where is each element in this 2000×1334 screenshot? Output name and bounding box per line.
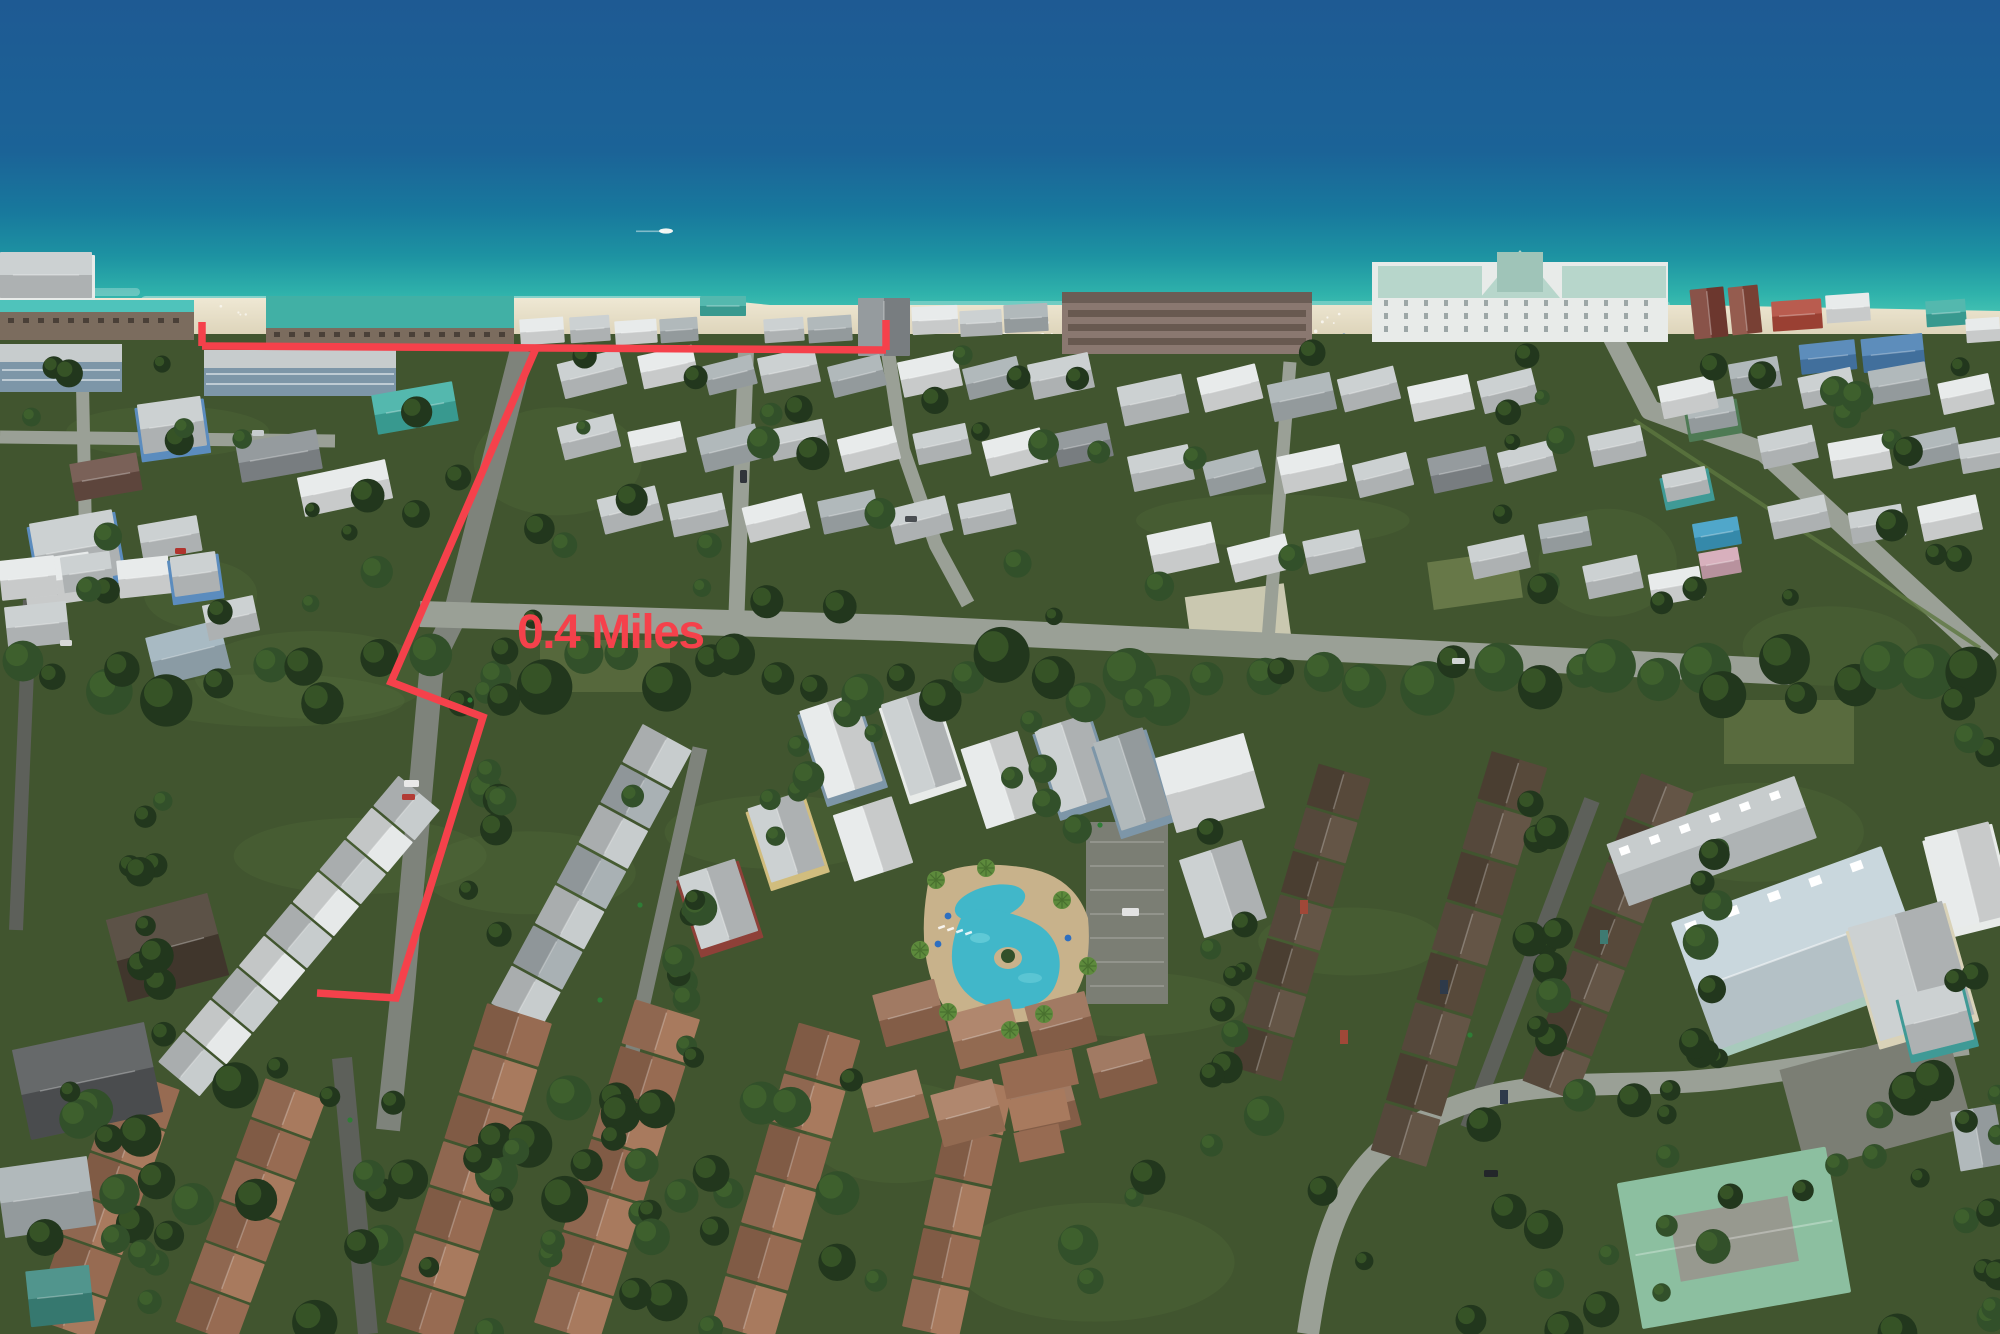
ocean [0, 0, 2000, 338]
aerial-photo: 0.4 Miles [0, 0, 2000, 1334]
scene-svg: 0.4 Miles [0, 0, 2000, 1334]
distance-label: 0.4 Miles [517, 606, 704, 659]
route-beach-line [202, 346, 886, 350]
